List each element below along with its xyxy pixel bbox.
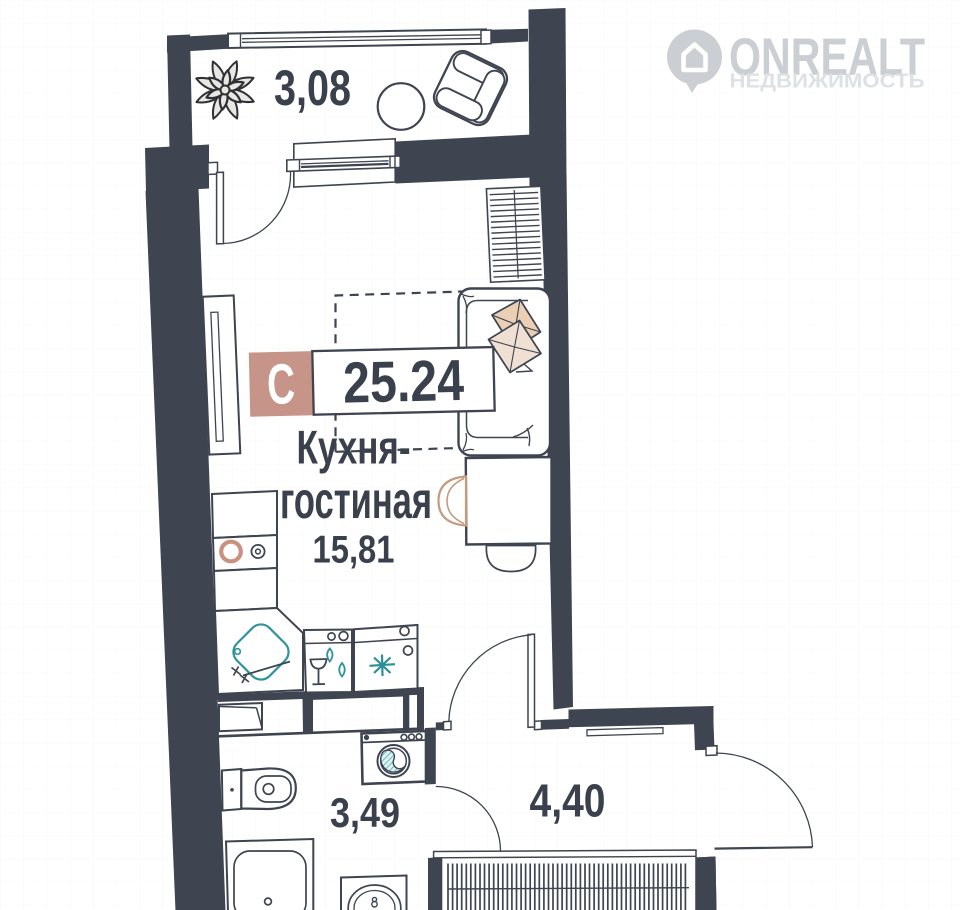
svg-text:15,81: 15,81	[313, 529, 395, 572]
svg-text:С: С	[266, 352, 295, 417]
svg-text:3,08: 3,08	[274, 60, 351, 116]
svg-text:4,40: 4,40	[530, 775, 606, 827]
svg-text:НЕДВИЖИМОСТЬ: НЕДВИЖИМОСТЬ	[730, 71, 925, 93]
svg-text:3,49: 3,49	[330, 789, 400, 836]
svg-text:гостиная: гостиная	[280, 472, 432, 530]
svg-text:Кухня-: Кухня-	[297, 421, 411, 474]
svg-text:25.24: 25.24	[342, 348, 464, 416]
